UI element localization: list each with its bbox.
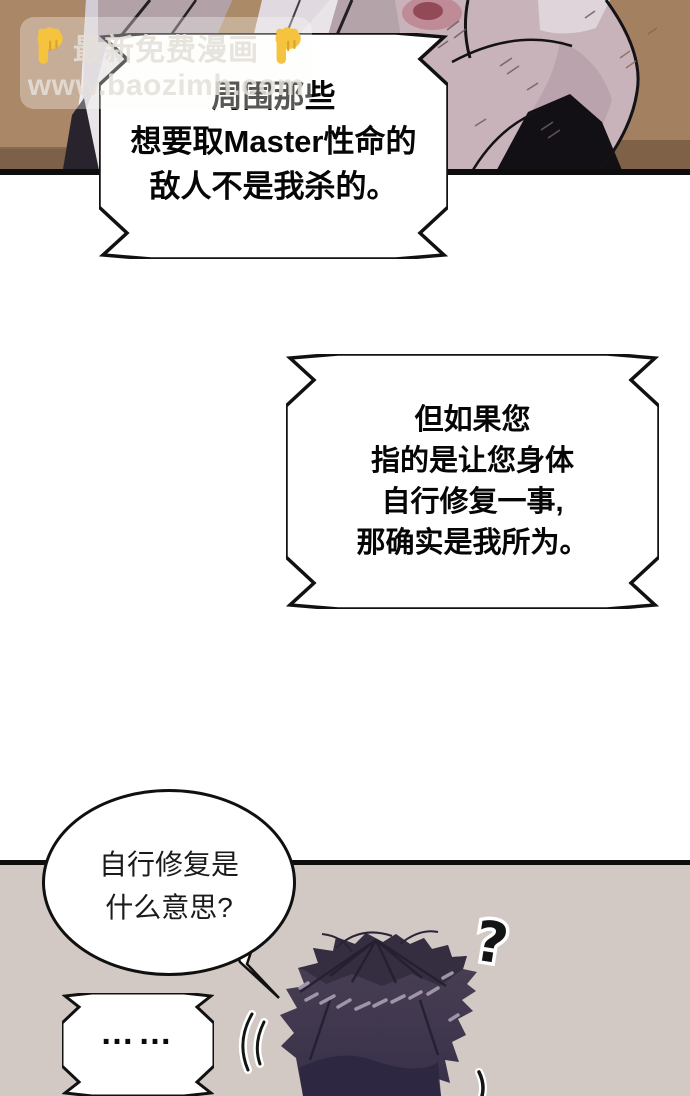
pointing-down-hand-icon bbox=[268, 27, 302, 67]
speech-bubble-jagged-2: 但如果您 指的是让您身体 自行修复一事, 那确实是我所为。 bbox=[286, 354, 659, 609]
bubble1-line: 敌人不是我杀的。 bbox=[150, 164, 398, 209]
bubble2-line: 那确实是我所为。 bbox=[356, 523, 588, 564]
motion-lines bbox=[243, 1014, 264, 1070]
bubble2-line: 指的是让您身体 bbox=[371, 441, 574, 482]
speech-bubble-round: 自行修复是 什么意思? bbox=[42, 789, 296, 976]
watermark-text: 最新免费漫画 bbox=[73, 25, 259, 69]
silence-text: …… bbox=[100, 1014, 176, 1053]
bubble3-line: 自行修复是 bbox=[99, 843, 239, 886]
motion-stroke bbox=[479, 1072, 483, 1096]
bubble2-line: 自行修复一事, bbox=[381, 482, 563, 523]
webtoon-page: 周围那些 想要取Master性命的 敌人不是我杀的。 最新免费漫画 bbox=[0, 0, 690, 1096]
watermark-url: www.baozimh.com bbox=[28, 69, 304, 103]
silence-bubble: …… bbox=[62, 993, 214, 1096]
question-mark-sfx: ? bbox=[470, 909, 512, 978]
bubble3-line: 什么意思? bbox=[105, 886, 233, 929]
pointing-down-hand-icon bbox=[30, 27, 64, 67]
bubble2-line: 但如果您 bbox=[414, 400, 530, 441]
bubble1-line: 想要取Master性命的 bbox=[131, 119, 417, 164]
watermark-banner: 最新免费漫画 www.baozimh.com bbox=[20, 17, 312, 109]
character-hair-back bbox=[280, 931, 477, 1096]
